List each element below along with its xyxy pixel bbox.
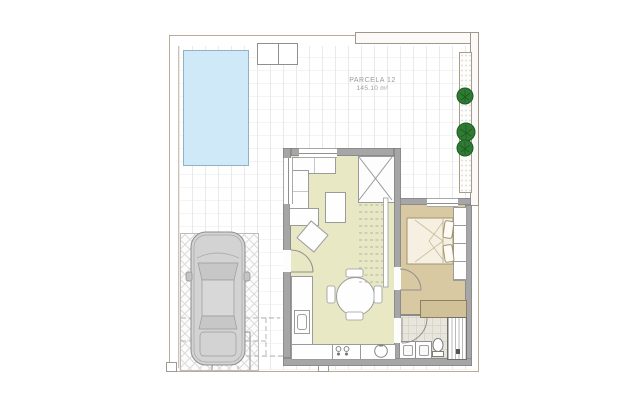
outdoor-storage-boxes: [257, 43, 298, 65]
bedroom-wardrobe-strip: [453, 207, 467, 281]
boundary-marker: [166, 362, 177, 372]
bedroom-door-opening: [394, 267, 401, 290]
bathroom-door-opening: [394, 318, 401, 343]
stove: [332, 344, 361, 360]
parcel-label-block: PARCELA 12 145.10 m²: [320, 76, 425, 94]
living-window-top: [299, 148, 337, 158]
kitchen-sink: [294, 310, 310, 334]
living-window-left: [283, 158, 293, 204]
planter-strip: [459, 52, 472, 193]
wardrobe: [420, 300, 467, 318]
entry-door-opening: [283, 250, 291, 272]
bedroom-bathroom-divider: [400, 314, 421, 316]
parcel-name: PARCELA 12: [320, 76, 425, 85]
vanity-sink: [399, 341, 416, 359]
coffee-table: [325, 192, 346, 223]
bedroom-window-top: [427, 198, 458, 207]
shower: [447, 317, 467, 360]
dining-table: [336, 277, 375, 316]
floor-plan-canvas: PARCELA 12 145.10 m²: [0, 0, 640, 412]
boundary-wall-top: [355, 32, 479, 44]
parcel-area: 145.10 m²: [320, 85, 425, 94]
staircase-void: [358, 156, 395, 203]
vanity-sink: [415, 341, 432, 359]
garage-paving: [180, 233, 259, 371]
swimming-pool: [183, 50, 249, 166]
